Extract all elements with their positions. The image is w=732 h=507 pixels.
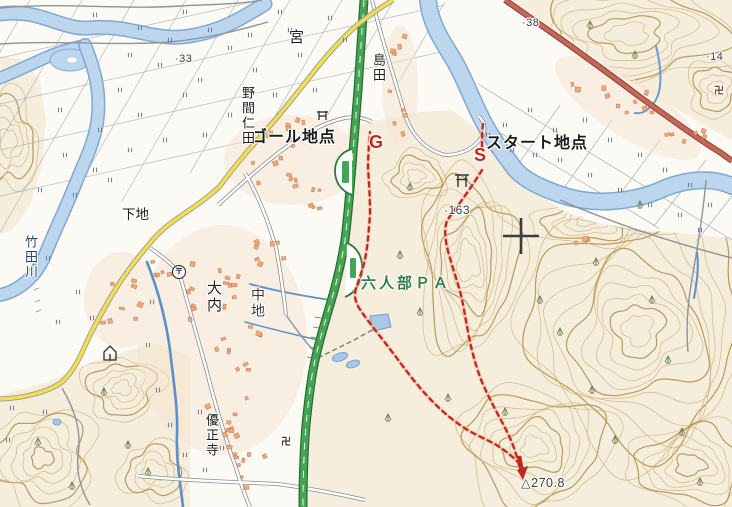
temple-swastika-icon: 卍: [714, 87, 724, 97]
summit-elevation-label: △270.8: [521, 477, 565, 490]
place-label-shimoji: 下地: [122, 208, 149, 222]
topographic-map: ゴール地点 スタート地点 G S 六人部ＰＡ 宮 島田 野間仁田 下地 竹田川 …: [0, 0, 732, 507]
place-label-shimada: 島田: [372, 53, 385, 83]
place-label-noma-nita: 野間仁田: [241, 86, 254, 146]
parking-area-label: 六人部ＰＡ: [361, 276, 451, 291]
place-label-miya: 宮: [289, 30, 304, 45]
temple-label-yushoji: 優正寺: [205, 413, 218, 458]
place-label-ouchi: 大内: [206, 280, 221, 314]
elevation-163: ·163: [444, 204, 470, 216]
elevation-38: ·38: [522, 18, 539, 29]
place-label-nakaji: 中地: [251, 287, 265, 319]
start-marker-s: S: [474, 146, 486, 164]
goal-point-label: ゴール地点: [251, 130, 336, 146]
start-point-label: スタート地点: [486, 136, 588, 152]
map-canvas: [0, 0, 732, 507]
elevation-14: ·14: [706, 52, 723, 63]
gate-icon: [317, 111, 328, 120]
temple-swastika-icon: 卍: [281, 438, 291, 448]
elevation-33: ·33: [175, 54, 192, 65]
goal-marker-g: G: [369, 133, 383, 151]
river-label-takeda: 竹田川: [24, 235, 37, 280]
post-office-icon: 〒: [172, 265, 186, 279]
